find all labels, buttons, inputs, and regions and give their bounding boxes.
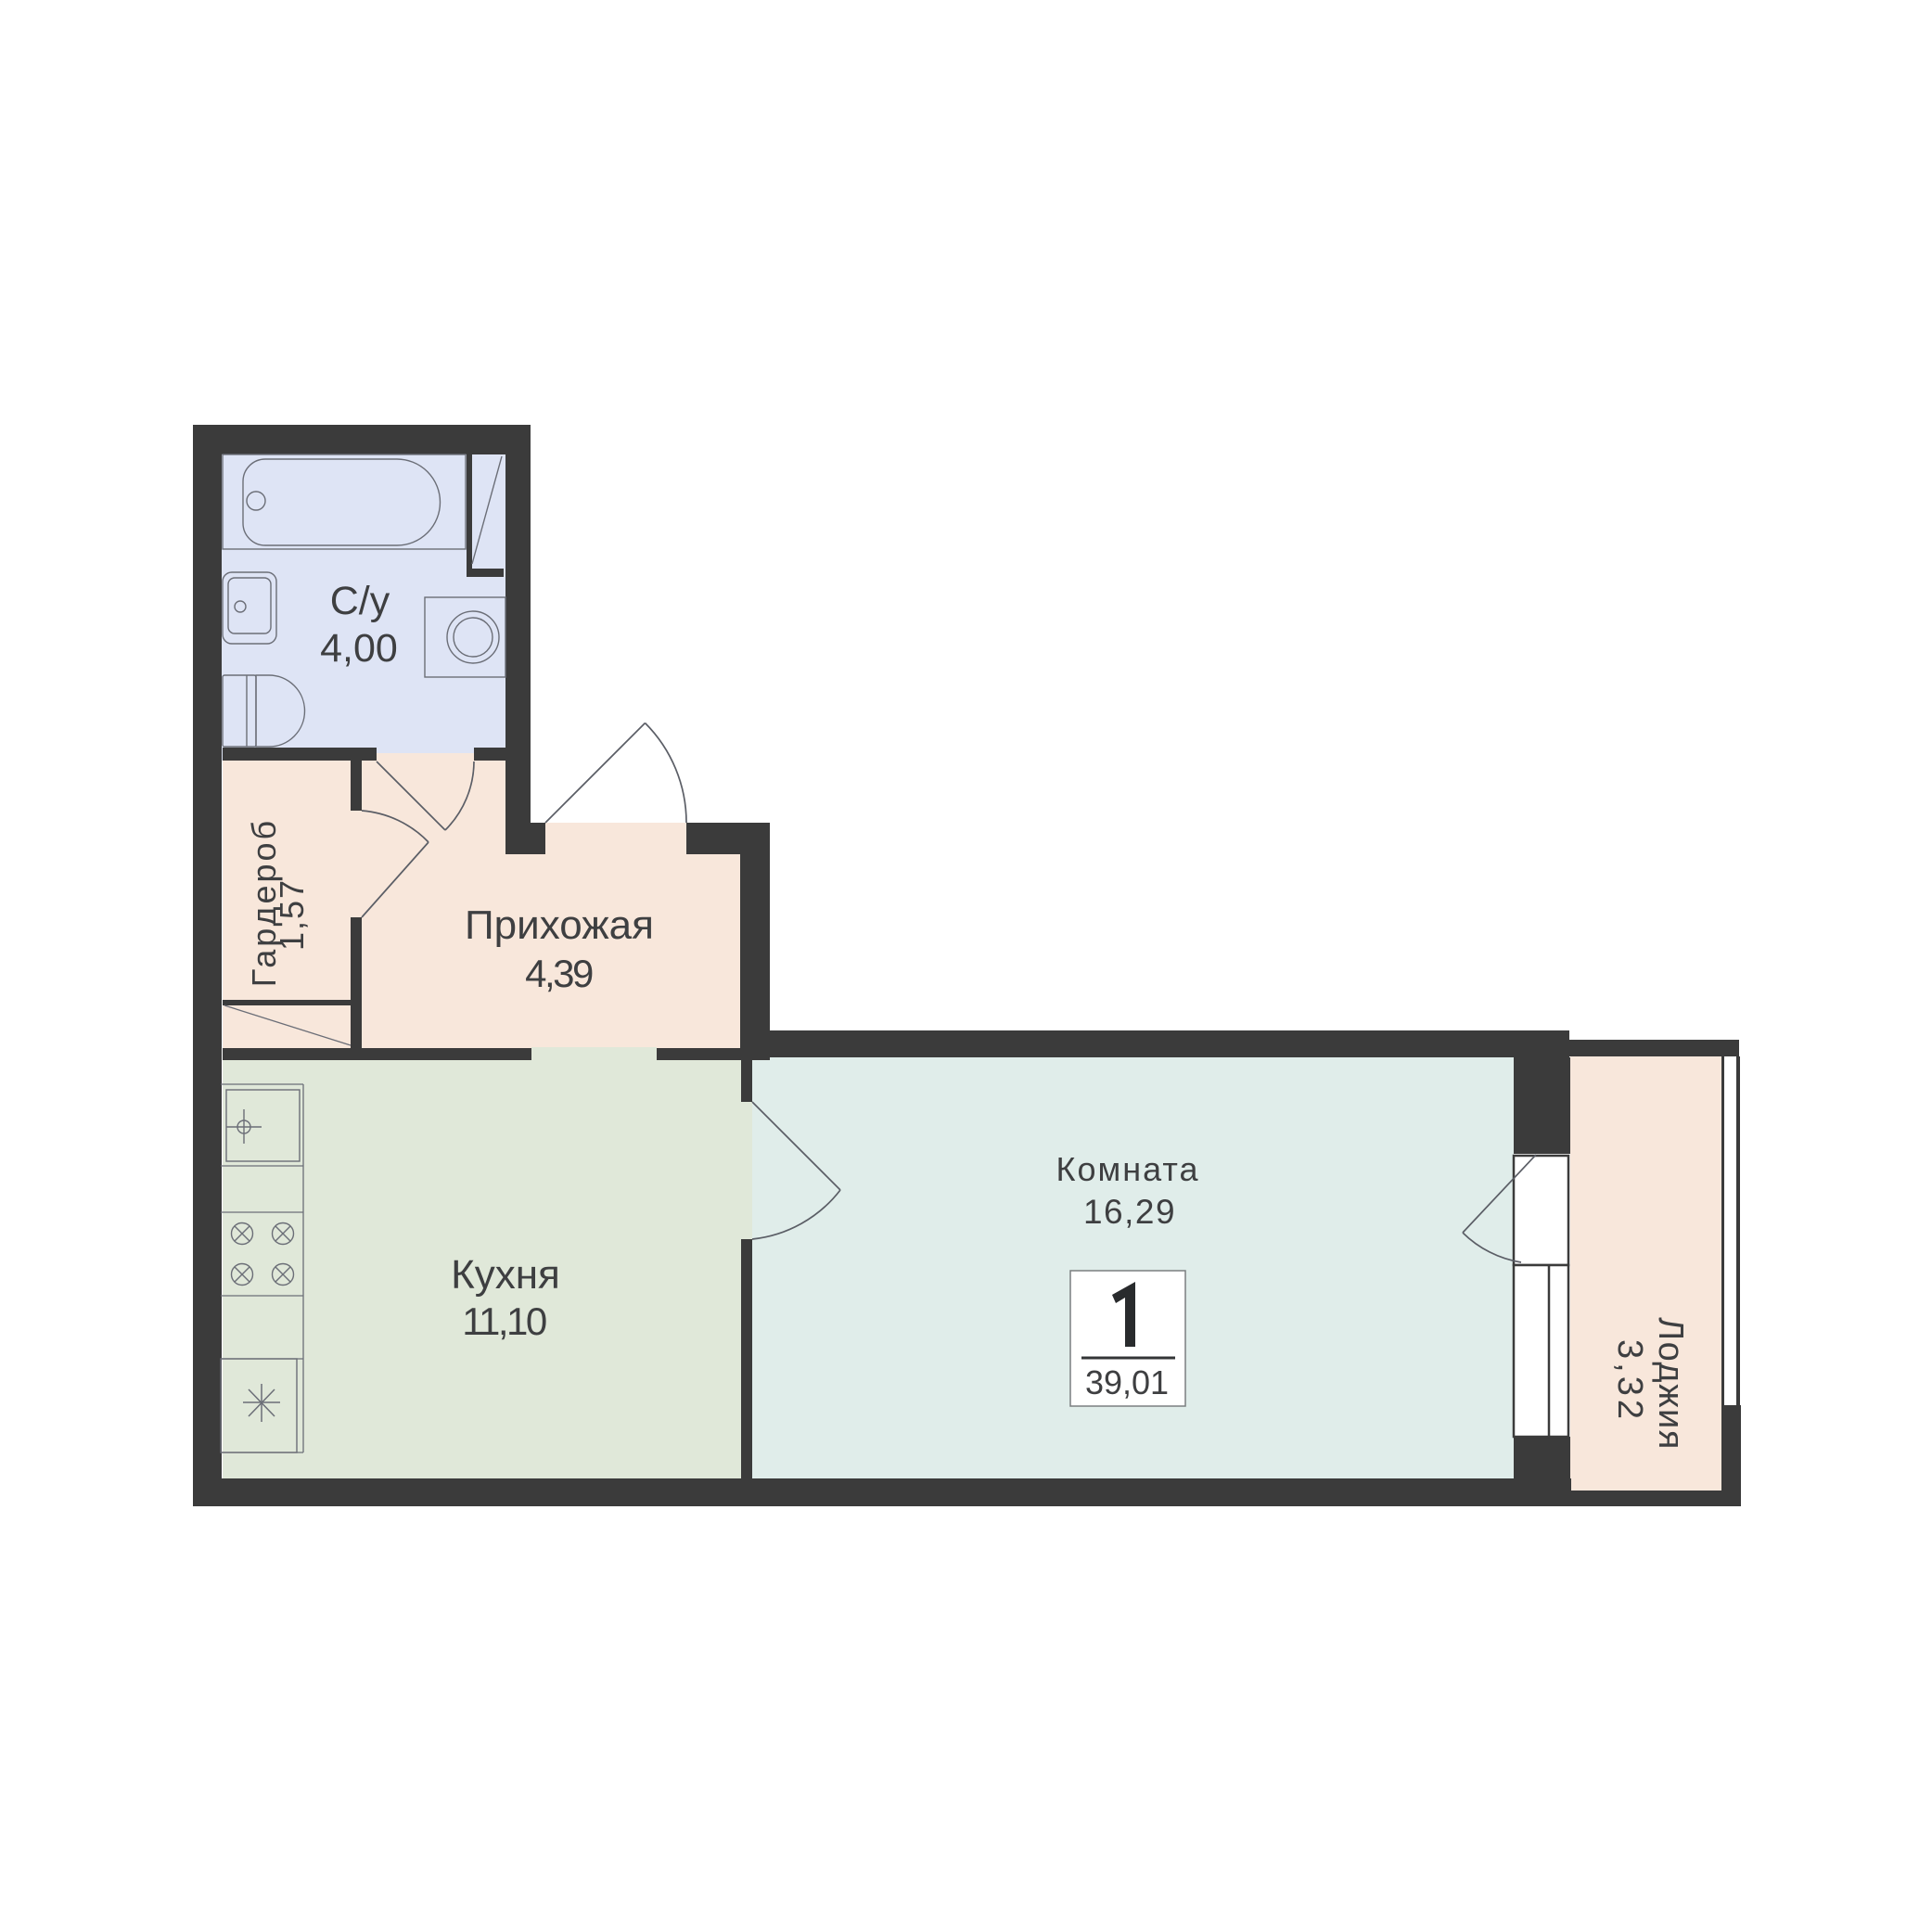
svg-text:16,29: 16,29	[1083, 1193, 1176, 1231]
svg-text:4,00: 4,00	[320, 626, 398, 671]
svg-text:3,32: 3,32	[1610, 1339, 1649, 1423]
svg-text:Кухня: Кухня	[451, 1252, 560, 1298]
svg-text:Комната: Комната	[1056, 1150, 1200, 1188]
svg-text:4,39: 4,39	[525, 952, 593, 995]
svg-text:11,10: 11,10	[462, 1299, 546, 1343]
svg-text:С/у: С/у	[330, 579, 390, 623]
svg-text:Прихожая: Прихожая	[465, 902, 654, 948]
svg-text:1,57: 1,57	[273, 878, 311, 951]
svg-text:Лоджия: Лоджия	[1651, 1317, 1690, 1451]
svg-text:39,01: 39,01	[1085, 1363, 1169, 1401]
